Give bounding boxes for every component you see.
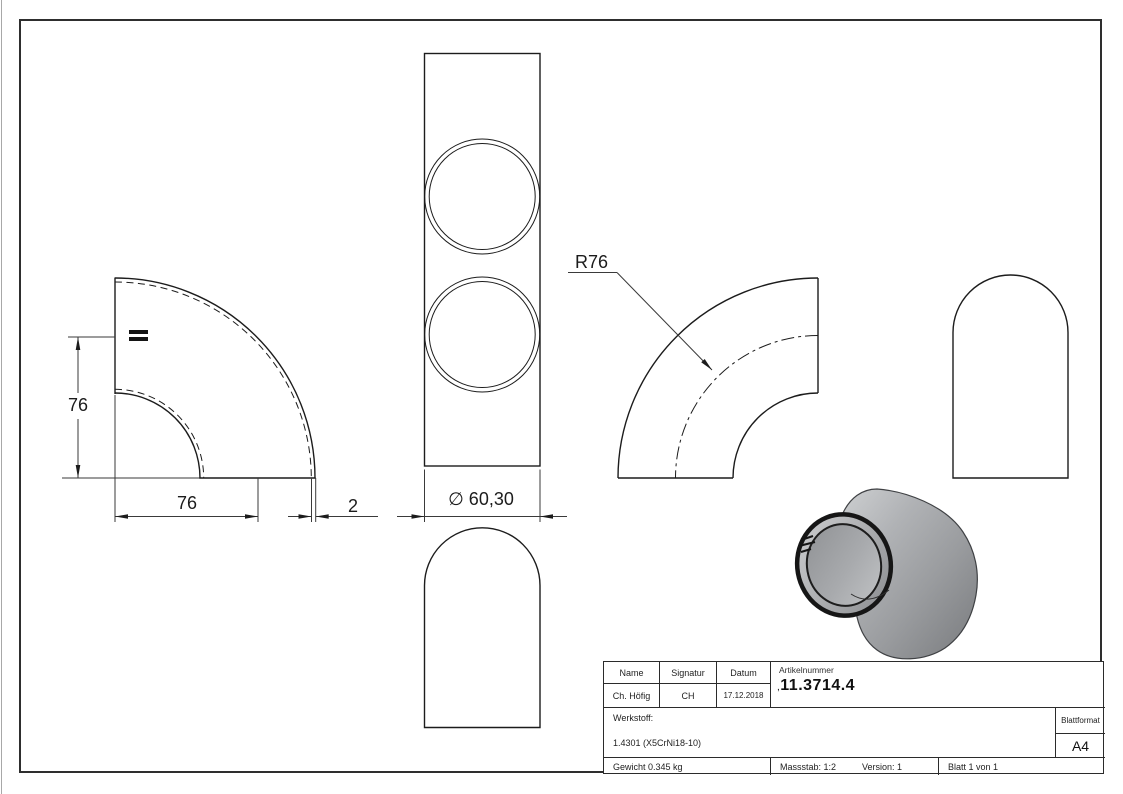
dim-radius-label: R76	[575, 252, 608, 272]
tb-scale: Massstab: 1:2	[780, 762, 836, 772]
end-view	[953, 275, 1068, 478]
vertical-dimension-76: 76	[62, 337, 200, 478]
tb-version: Version: 1	[862, 762, 902, 772]
dim-length-label: 76	[177, 493, 197, 513]
side-view	[115, 278, 316, 479]
drawing-page: 76 76 2	[0, 0, 1123, 794]
dim-height-label: 76	[68, 395, 88, 415]
material-value: 1.4301 (X5CrNi18-10)	[613, 738, 701, 748]
radius-view	[618, 278, 818, 478]
tb-sheet-count: Blatt 1 von 1	[939, 758, 1105, 775]
render-3d	[787, 489, 978, 659]
surface-mark-1	[129, 330, 148, 334]
article-number-label: Artikelnummer	[779, 665, 834, 675]
dim-wall-label: 2	[348, 496, 358, 516]
bottom-view	[425, 528, 541, 728]
tb-scale-version: Massstab: 1:2 Version: 1	[771, 758, 939, 775]
title-block: Name Signatur Datum Ch. Höfig CH 17.12.2…	[603, 661, 1104, 774]
radius-dimension: R76	[568, 252, 712, 370]
wall-thickness-dimension-2: 2	[288, 478, 378, 522]
tb-header-date: Datum	[717, 662, 771, 684]
tb-value-date: 17.12.2018	[717, 684, 771, 708]
material-label: Werkstoff:	[613, 713, 653, 723]
front-view	[425, 54, 541, 467]
tb-value-signature: CH	[660, 684, 717, 708]
tb-weight: Gewicht 0.345 kg	[604, 758, 771, 775]
tb-value-name: Ch. Höfig	[604, 684, 660, 708]
tb-sheet-format-value: A4	[1056, 734, 1105, 758]
surface-mark-2	[129, 337, 148, 341]
dim-diameter-label: ∅ 60,30	[448, 489, 514, 509]
tb-sheet-format-label: Blattformat	[1056, 708, 1105, 734]
tb-header-signature: Signatur	[660, 662, 717, 684]
tb-article-cell: Artikelnummer ,11.3714.4 Oberfläche: Ges…	[771, 662, 1105, 708]
article-number: 11.3714.4	[780, 677, 855, 694]
horizontal-dimension-76: 76	[115, 395, 258, 522]
article-number-value: ,11.3714.4	[777, 677, 855, 695]
tb-material-cell: Werkstoff: 1.4301 (X5CrNi18-10)	[604, 708, 1056, 758]
diameter-dimension: ∅ 60,30	[397, 470, 567, 523]
tb-header-name: Name	[604, 662, 660, 684]
